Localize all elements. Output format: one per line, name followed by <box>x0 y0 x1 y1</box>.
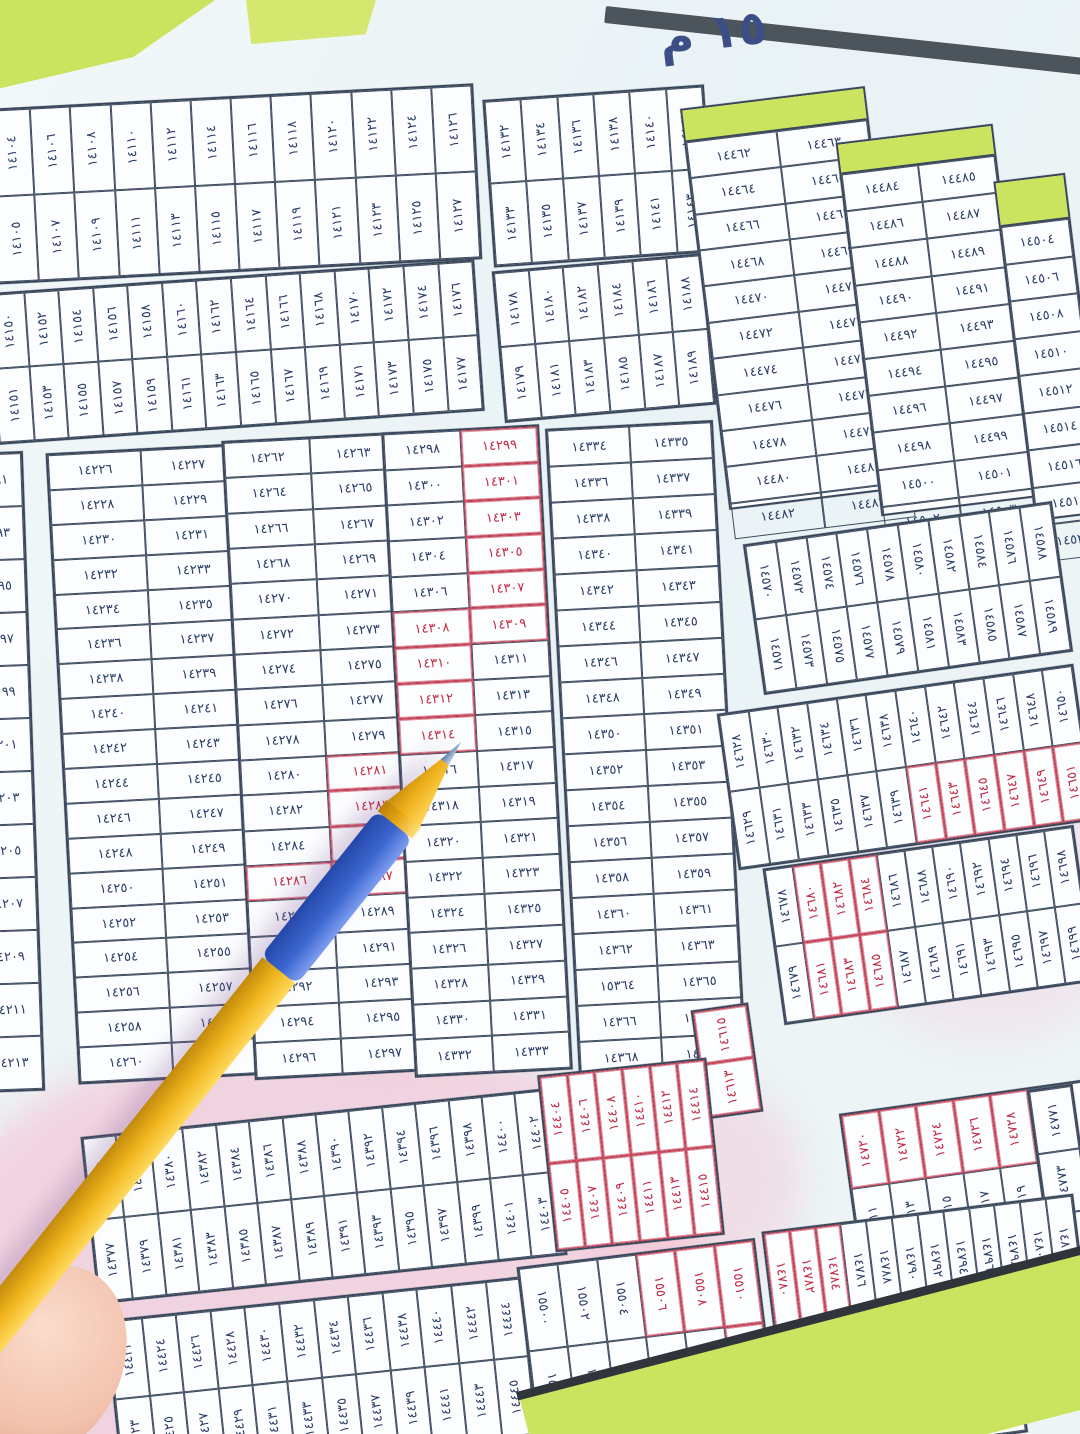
plot-cell: ١٤٣٤٥ <box>638 602 722 642</box>
plot-cell: ١٤١٧١ <box>340 342 380 418</box>
plot-cell: ١٤٢١١ <box>0 983 41 1038</box>
plot-cell: ١٤٢٥٤ <box>73 938 168 978</box>
plot-cell: ١٤٣٣٧ <box>631 458 715 498</box>
plot-cell: ١٤١٣٨ <box>593 92 635 176</box>
street-width-label: ١٥ م <box>596 0 831 75</box>
plot-cell: ١٤٢٩٦ <box>255 1038 343 1078</box>
plot-cell: ١٤٢٤٠ <box>60 694 155 734</box>
plot-cell: ١٤٣٠٩ <box>470 605 549 645</box>
plot-cell: ١٤١١٦ <box>231 96 276 184</box>
plot-cell: ١٤٣٢٧ <box>486 925 565 965</box>
plot-cell: ١٤١٥٢ <box>24 290 64 366</box>
plot-cell: ١٤١٠٤ <box>0 109 34 197</box>
plot-cell: ١٤٣٣١ <box>490 996 569 1036</box>
plot-cell: ١٤٢٣٦ <box>57 625 152 665</box>
plot-cell: ١٤٢٦٨ <box>229 544 317 584</box>
plot-cell: ١٤٢٤٢ <box>62 729 157 769</box>
plot-cell: ١٤١١٨ <box>271 94 316 182</box>
plot-cell: ١٤٣٥١ <box>644 710 728 750</box>
plot-cell: ١٤٢٧٠ <box>231 580 319 620</box>
plot-cell: ١٤٣٠١ <box>462 462 541 502</box>
plot-cell: ١٤١٢٦ <box>431 86 476 174</box>
plot-cell: ١٤١٢١ <box>315 178 360 266</box>
plot-cell: ١٤١٥٣ <box>29 364 69 440</box>
plot-cell: ١٤١٢٣ <box>355 176 400 264</box>
plot-cell: ١٤٣٤١ <box>635 530 719 570</box>
plot-cell: ١٤٣٠٣ <box>464 498 543 538</box>
plot-cell: ١٤٢٥٠ <box>70 869 165 909</box>
plot-cell: ١٤١١٠ <box>110 102 155 190</box>
plot-cell: ١٤٣٥٤ <box>566 786 650 826</box>
plot-cell: ١٤١٦٢ <box>196 278 236 354</box>
plot-cell: ١٤٣٢١ <box>481 818 560 858</box>
plot-cell: ١٤١٢٥ <box>395 173 440 261</box>
band-14178: ١٤١٧٨١٤١٨٠١٤١٨٢١٤١٨٤١٤١٨٦١٤١٨٨١٤١٧٩١٤١٨١… <box>492 253 716 423</box>
plot-cell: ١٤٣٣٥ <box>629 422 713 462</box>
plot-cell: ١٤٣٢٩ <box>488 961 567 1001</box>
plot-cell: ١٤٢٨٢ <box>242 791 330 831</box>
plot-cell: ١٤٣١١ <box>471 640 550 680</box>
plot-cell: ١٤٣٥٨ <box>570 858 654 898</box>
band-14150: ١٤١٥٠١٤١٥٢١٤١٥٤١٤١٥٦١٤١٥٨١٤١٦٠١٤١٦٢١٤١٦٤… <box>0 259 485 445</box>
plot-cell: ١٤٣٤٨ <box>560 678 644 718</box>
plot-cell: ١٤٣٦١ <box>654 890 738 930</box>
plot-cell: ١٤٣٢٤ <box>408 894 487 934</box>
plot-cell: ١٤١٣٦ <box>557 94 599 178</box>
plot-cell: ١٤١٦٨ <box>300 271 340 347</box>
plot-cell: ١٤١٣٣ <box>490 181 532 265</box>
plot-cell: ١٤٣٥٣ <box>646 746 730 786</box>
plot-cell: ١٤٢٦٤ <box>225 474 313 514</box>
plot-cell: ١٤١٢٧ <box>436 171 481 259</box>
plot-cell: ١٤٣٥٢ <box>564 750 648 790</box>
plot-cell: ١٤١٦٤ <box>231 276 271 352</box>
plot-cell: ١٤١٠٩ <box>75 190 120 278</box>
plot-cell: ١٤١١٥ <box>195 184 240 272</box>
plot-cell: ١٤١٠٥ <box>0 195 39 283</box>
plot-cell: ١٤٣٠٥ <box>466 533 545 573</box>
plot-cell: ١٤١٣٤ <box>521 97 563 181</box>
plot-cell: ١٤٣٣٢ <box>415 1036 494 1076</box>
plot-cell: ١٤٣٣٤ <box>547 426 631 466</box>
plot-cell: ١٤٣٦٠ <box>572 894 656 934</box>
plot-cell: ١٤٣١٥ <box>475 711 554 751</box>
plot-cell: ١٤٢٠٣ <box>0 771 34 826</box>
plot-cell: ١٤٣٣٦ <box>549 462 633 502</box>
plot-cell: ١٤١٤٠ <box>630 89 672 173</box>
plot-cell: ١٤٣٠٧ <box>468 569 547 609</box>
plot-cell: ١٤٣١٣ <box>473 676 552 716</box>
plot-cell: ١٤١٦٥ <box>236 350 276 426</box>
plot-cell: ١٤٣٤٢ <box>555 570 639 610</box>
plot-cell: ١٤١١٩ <box>275 180 320 268</box>
plot-cell: ١٤١٢٢ <box>351 90 396 178</box>
plot-cell: ١٤٧٧١ <box>1029 1086 1079 1154</box>
plot-cell: ١٤١٤١ <box>635 171 677 255</box>
plot-cell: ١٤١٣٧ <box>563 176 605 260</box>
plot-cell: ١٤١٢٠ <box>311 92 356 180</box>
plot-cell: ١٤٢٥٨ <box>77 1008 172 1048</box>
plot-cell: ١٤٢١٣ <box>0 1036 43 1091</box>
plot-cell: ١٤٢٤٦ <box>66 799 161 839</box>
pen-nib <box>441 739 465 766</box>
plot-cell: ١٤٣٤٩ <box>642 674 726 714</box>
plot-cell: ١٤٢٧٨ <box>238 721 326 761</box>
plot-cell: ١٤٣٤٠ <box>553 534 637 574</box>
plot-cell: ١٤١٣٥ <box>527 179 569 263</box>
plot-cell: ١٤٢٣٤ <box>55 590 150 630</box>
plot-cell: ١٤٢٢٨ <box>50 485 145 525</box>
plot-cell: ١٤١٧٧ <box>443 335 483 411</box>
plot-cell: ١٤٣٥٩ <box>652 854 736 894</box>
plot-cell: ١٤٣٢٣ <box>483 854 562 894</box>
plot-cell: ١٤١٧٢ <box>369 266 409 342</box>
plot-cell: ١٤١٠٨ <box>70 104 115 192</box>
plot-cell: ١٤١٧٣ <box>374 340 414 416</box>
plot-cell: ١٤٣٤٣ <box>637 566 721 606</box>
plot-cell: ١٤٣٥٠ <box>562 714 646 754</box>
plot-cell: ١٤٢٣٠ <box>51 520 146 560</box>
plot-cell: ١٤٣٢٢ <box>406 858 485 898</box>
plot-cell: ١٤١٠٧ <box>34 192 79 280</box>
plot-cell: ١٤٢٧٤ <box>235 650 323 690</box>
plot-cell: ١٤١١١ <box>115 188 160 276</box>
plot-cell: ١٤٣٤٦ <box>558 642 642 682</box>
plot-cell: ١٤٣٥٦ <box>568 822 652 862</box>
plot-cell: ١٤٣١٧ <box>477 747 556 787</box>
plot-cell: ١٤١٣٩ <box>599 173 641 257</box>
plot-cell: ١٤٣٢٥ <box>484 890 563 930</box>
plot-cell: ١٤٥١٦ <box>1028 442 1080 488</box>
plot-cell: ١٤٣٦٣ <box>655 925 739 965</box>
plot-cell: ١٤٢٠١ <box>0 718 32 773</box>
plot-cell: ١٤١٦٦ <box>265 273 305 349</box>
plot-cell: ١٤٣٠٤ <box>389 537 468 577</box>
plot-cell: ١٤١٥٨ <box>127 283 167 359</box>
plot-cell: ١٣٣١٥ <box>962 1347 1026 1434</box>
plot-cell: ١٤٥١٤ <box>1024 405 1080 451</box>
plot-cell: ١٤١٥٤ <box>58 288 98 364</box>
plot-cell: ١٤٢٠٧ <box>0 877 38 932</box>
plot-cell: ١٤١٣٢ <box>485 99 527 183</box>
plot-cell: ١٤١١٤ <box>190 98 235 186</box>
plot-cell: ١٤١٦٣ <box>202 352 242 428</box>
plot-cell: ١٤١٩٥ <box>0 559 26 614</box>
block-14298: ١٤٢٩٨١٤٢٩٩١٤٣٠٠١٤٣٠١١٤٣٠٢١٤٣٠٣١٤٣٠٤١٤٣٠٥… <box>381 424 573 1077</box>
plot-cell: ١٤٢٥٢ <box>71 903 166 943</box>
plot-cell: ١٤٣٠٠ <box>385 466 464 506</box>
plot-cell: ١٤٢٩٩ <box>460 426 539 466</box>
plot-cell: ١٤٢٦٦ <box>227 509 315 549</box>
plot-cell: ١٤٢٩٨ <box>383 430 462 470</box>
plot-cell: ١٤٣٤٤ <box>557 606 641 646</box>
block-14334: ١٤٣٣٤١٤٣٣٥١٤٣٣٦١٤٣٣٧١٤٣٣٨١٤٣٣٩١٤٣٤٠١٤٣٤١… <box>545 420 747 1080</box>
plot-cell: ١٤١٦٧ <box>271 347 311 423</box>
plot-cell: ١٤٣٦٥ <box>657 961 741 1001</box>
plot-cell: ١٤٣٣٩ <box>633 494 717 534</box>
plot-cell: ١٤١٩١ <box>0 453 23 508</box>
plot-cell: ١٥٣٦٤ <box>575 966 659 1006</box>
plot-cell: ١٤٣٥٧ <box>650 818 734 858</box>
plot-cell: ١٤١٥٦ <box>93 285 133 361</box>
plot-cell: ١٤٢٠٥ <box>0 824 36 879</box>
plot-cell: ١٤٢٦٠ <box>79 1043 174 1083</box>
plot-cell: ١٤١٩٩ <box>0 665 30 720</box>
plot-cell: ١٤١٩٣ <box>0 506 25 561</box>
plot-cell: ١٤٢٨٤ <box>244 827 332 867</box>
plot-cell: ١٤٢٣٨ <box>59 659 154 699</box>
plot-cell: ١٤٣٤٧ <box>640 638 724 678</box>
plot-cell: ١٤٣٥٥ <box>648 782 732 822</box>
plot-cell: ١٤٣٢٨ <box>411 965 490 1005</box>
band-14104: ١٤١٠٤١٤١٠٦١٤١٠٨١٤١١٠١٤١١٢١٤١١٤١٤١١٦١٤١١٨… <box>0 83 482 284</box>
plot-cell: ١٤١٥٧ <box>98 359 138 435</box>
plot-cell: ١٤٣٦٦ <box>577 1002 661 1042</box>
plot-cell: ١٤١٧٥ <box>409 338 449 414</box>
green-area-top-left-2 <box>246 0 376 44</box>
plot-cell: ١٤٢٣٢ <box>53 555 148 595</box>
plot-cell: ١٤٣٠٢ <box>387 502 466 542</box>
plot-cell: ١٤٢٧٢ <box>233 615 321 655</box>
plot-cell: ١٤٢٥٦ <box>75 973 170 1013</box>
green-area-top-left <box>0 0 215 92</box>
plot-cell: ١٤١٧٤ <box>403 264 443 340</box>
plot-cell: ١٤٢٤٤ <box>64 764 159 804</box>
plot-cell: ١٤١٩٧ <box>0 612 28 667</box>
plot-cell: ١٤١٢٤ <box>391 88 436 176</box>
plot-cell: ١٤٢٧٦ <box>236 685 324 725</box>
plot-cell: ١٤١٦٩ <box>305 345 345 421</box>
plot-cell: ١٤٣٠٦ <box>391 573 470 613</box>
plot-cell: ١٤٣٣٨ <box>551 498 635 538</box>
plot-cell: ١٤١٥٩ <box>133 357 173 433</box>
plot-cell: ١٤١٦٠ <box>162 281 202 357</box>
plot-cell: ١٤٣٦٢ <box>574 930 658 970</box>
red-block-14404: ١٤٤٠٤١٤٤٠٦١٤٤٠٨١٤٤١٠١٤٤١٢١٤٤١٤١٤٤٠٥١٤٤٠٧… <box>537 1058 725 1253</box>
plot-cell: ١٤٣٣٠ <box>413 1000 492 1040</box>
band-14422: ١٤٤٢٢١٤٤٢٤١٤٤٢٦١٤٤٢٨١٤٤٣٠١٤٤٣٢١٤٤٣٤١٤٤٣٦… <box>105 1273 573 1434</box>
plot-cell: ١٤١١٣ <box>155 186 200 274</box>
plot-cell: ١٤٢٨٠ <box>240 756 328 796</box>
plot-cell: ١٤١١٢ <box>150 100 195 188</box>
plot-cell: ١٤١٧٠ <box>334 269 374 345</box>
plot-cell: ١٤١١٧ <box>235 182 280 270</box>
plot-cell: ١٤٢٢٦ <box>48 450 143 490</box>
edge-column-14191: ١٤١٩١١٤١٩٣١٤١٩٥١٤١٩٧١٤١٩٩١٤٢٠١١٤٢٠٣١٤٢٠٥… <box>0 451 45 1093</box>
plot-cell: ١٤٣١٩ <box>479 783 558 823</box>
plot-cell: ١٤١٦١ <box>167 354 207 430</box>
plot-cell: ١٤٢٦٢ <box>223 438 311 478</box>
photographed-plot-map: ١٥ م ١٤١٠٤١٤١٠٦١٤١٠٨١٤١١٠١٤١١٢١٤١١٤١٤١١٦… <box>0 0 1080 1434</box>
plot-cell: ١٤١٠٦ <box>30 107 75 195</box>
plot-cell: ١٤١٧٦ <box>438 261 478 337</box>
plot-cell: ١٤٢٤٨ <box>68 834 163 874</box>
plot-cell: ١٤٣٠٨ <box>393 609 472 649</box>
plot-cell: ١٤٣١٢ <box>396 680 475 720</box>
plot-cell: ١٤٦١٥ <box>693 1005 754 1065</box>
plot-cell: ١٤٣١٠ <box>395 644 474 684</box>
plot-cell: ١٤١٥٥ <box>64 362 104 438</box>
plot-cell: ١٤٣٣٣ <box>492 1032 571 1072</box>
plot-cell: ١٤٣٢٦ <box>409 929 488 969</box>
plot-cell: ١٤٢٠٩ <box>0 930 39 985</box>
